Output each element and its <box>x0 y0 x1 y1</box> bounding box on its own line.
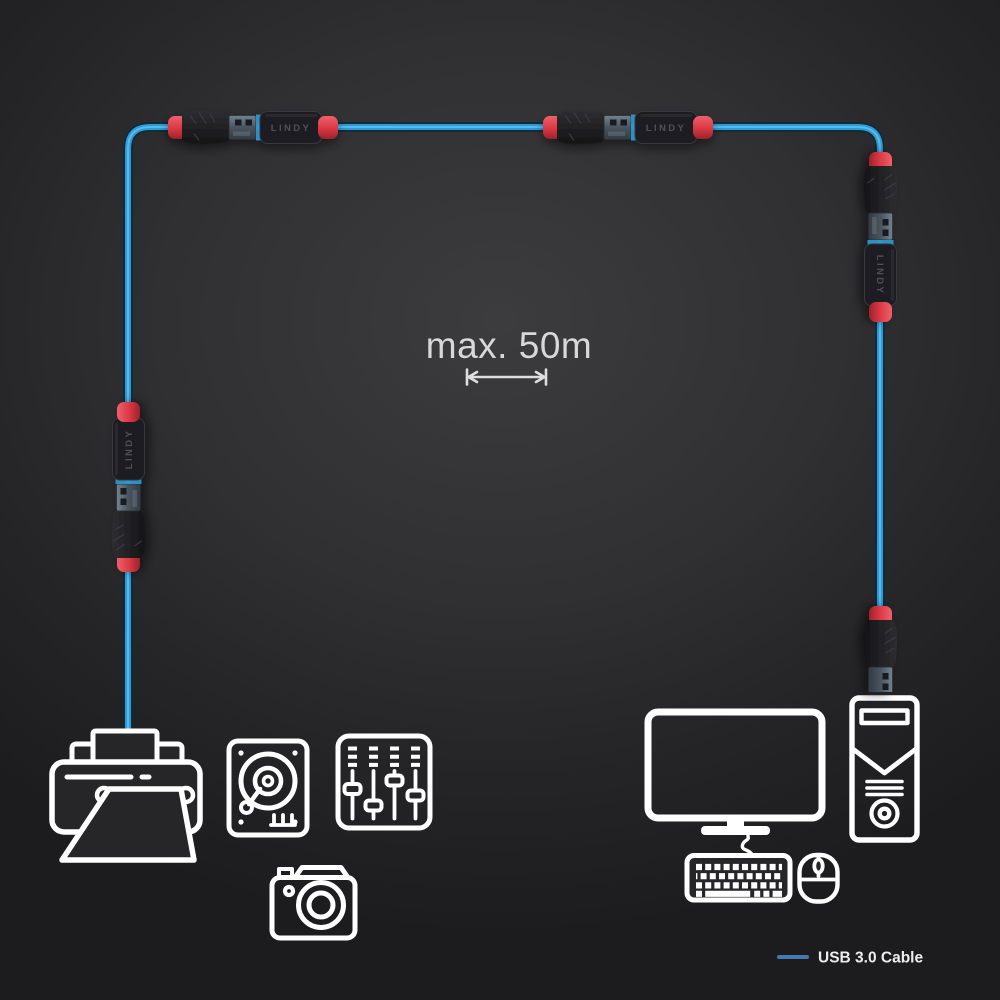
tower-vents <box>867 782 902 795</box>
hdd-screw <box>292 750 297 755</box>
camera-lens-inner <box>309 893 333 917</box>
camera-icon <box>272 868 355 939</box>
connector-pair-top-right <box>543 111 713 144</box>
mouse-scroll-wheel <box>814 860 822 873</box>
monitor-base <box>701 826 770 835</box>
tower-power-dot <box>880 809 890 819</box>
tower-drive-slot <box>862 711 908 724</box>
hdd-pins <box>271 815 295 825</box>
keyboard-icon <box>687 836 790 900</box>
connector-pair-left <box>112 402 145 572</box>
mixer-knob <box>366 801 382 811</box>
mixer-knob <box>387 776 403 786</box>
monitor-icon <box>648 712 822 835</box>
connector-pair-right <box>864 152 897 322</box>
mixer-scale-marks <box>353 747 416 768</box>
max-length-label: max. 50m <box>426 325 592 366</box>
camera-viewfinder <box>285 887 293 895</box>
hdd-screw <box>238 750 243 755</box>
hdd-actuator-head <box>241 802 252 813</box>
keyboard-cord <box>742 836 752 855</box>
usb-cable-path <box>128 127 880 736</box>
tower-chevron <box>853 749 916 773</box>
usb-plug-to-pc <box>864 606 897 694</box>
audio-mixer-icon <box>338 736 430 828</box>
mouse-icon <box>800 855 838 902</box>
connector-pair-top-left <box>168 111 338 144</box>
hdd-platter <box>241 754 295 808</box>
hdd-screw <box>238 819 243 824</box>
hdd-spindle <box>264 777 273 786</box>
max-length-annotation: max. 50m <box>426 325 592 385</box>
camera-lens-outer <box>299 883 344 928</box>
mixer-knob <box>345 784 361 794</box>
legend: USB 3.0 Cable <box>779 950 923 967</box>
printer-icon <box>52 731 200 860</box>
monitor-screen <box>648 712 822 818</box>
product-diagram: LINDY <box>0 0 1000 1000</box>
legend-label: USB 3.0 Cable <box>818 950 923 967</box>
tower-power-ring <box>872 801 898 827</box>
pc-tower-icon <box>852 698 917 840</box>
hard-drive-icon <box>229 741 307 835</box>
mixer-knob <box>408 791 424 801</box>
mixer-slider-knobs <box>345 776 424 811</box>
dimension-arrow-icon <box>467 370 546 385</box>
